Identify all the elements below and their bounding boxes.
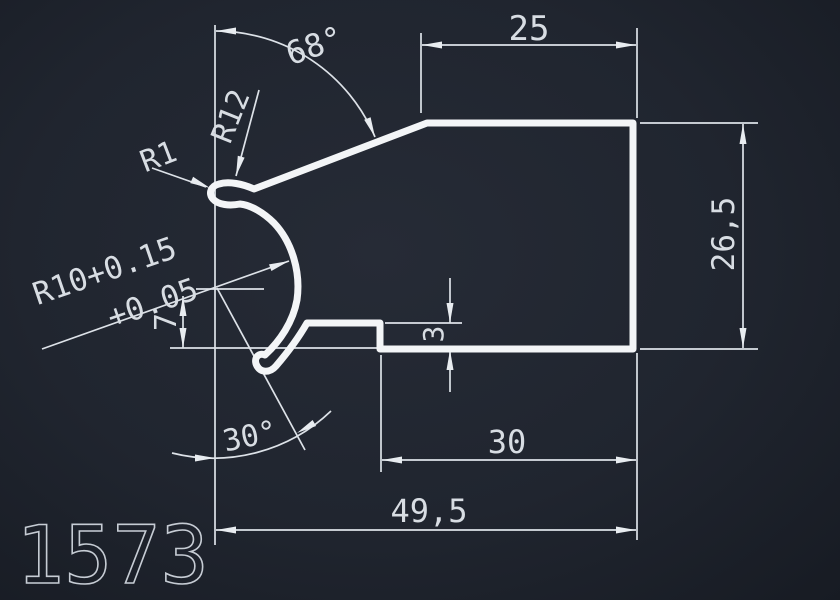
dim-top-width: 25 — [421, 9, 637, 118]
dim-angle-bottom: 30° — [172, 288, 331, 462]
arrowhead — [740, 328, 747, 348]
arrowhead — [616, 457, 636, 464]
arrowhead — [616, 527, 636, 534]
dim-mid-width-label: 30 — [488, 423, 527, 461]
arrowhead — [382, 457, 402, 464]
leader-radius-bend: R12 — [205, 85, 259, 176]
dim-angle-top-label: 68° — [281, 18, 348, 73]
dim-right-height: 26,5 — [640, 123, 758, 349]
dim-top-width-label: 25 — [509, 9, 550, 49]
arrowhead — [216, 527, 236, 534]
arrowhead — [422, 42, 442, 49]
radius-bend-label: R12 — [205, 85, 258, 148]
radius-hook-label: R1 — [135, 134, 181, 180]
arrowhead — [740, 124, 747, 144]
arrowhead — [447, 303, 454, 323]
arrowhead — [616, 42, 636, 49]
dim-mid-width: 30 — [381, 355, 636, 472]
leader-radius-hook: R1 — [135, 134, 210, 188]
arrowhead — [236, 156, 245, 176]
dim-step-depth: 3 — [385, 278, 462, 392]
arrowhead — [195, 455, 215, 462]
cad-drawing-canvas: 68° 25 26,5 3 — [0, 0, 840, 600]
part-number: 1573 — [16, 509, 209, 600]
drawing-svg: 68° 25 26,5 3 — [0, 0, 840, 600]
arrowhead — [190, 177, 210, 188]
arrowhead — [364, 117, 375, 137]
dim-total-width-label: 49,5 — [390, 492, 467, 530]
arrowhead — [447, 350, 454, 370]
dim-angle-bottom-label: 30° — [220, 414, 280, 460]
arrowhead — [269, 261, 289, 271]
dim-step-depth-label: 3 — [417, 326, 450, 343]
arrowhead — [216, 28, 236, 35]
dim-right-height-label: 26,5 — [706, 197, 742, 272]
